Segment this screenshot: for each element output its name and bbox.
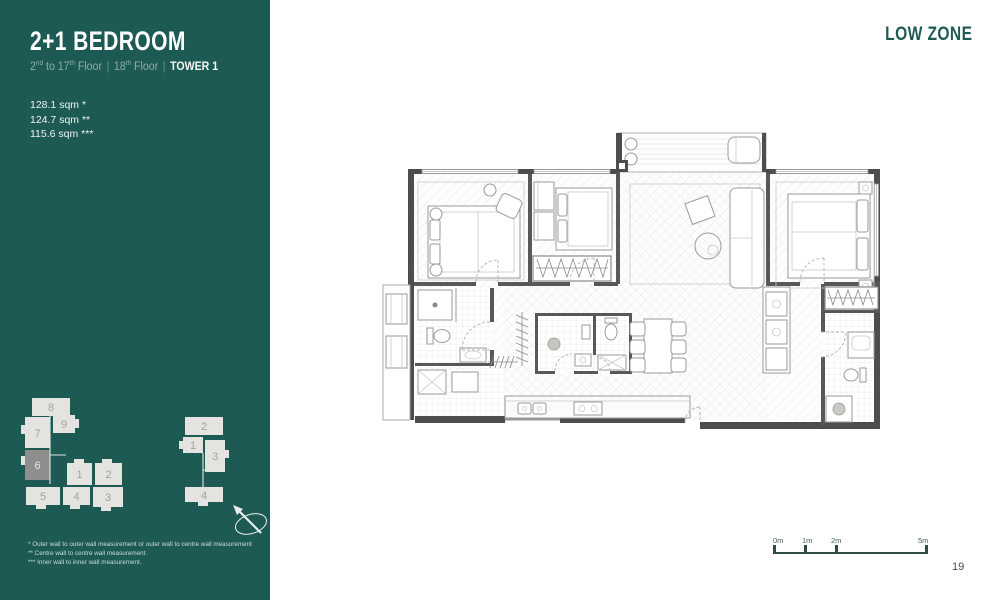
keyplan-tower2: 2 1 3 4: [178, 412, 238, 512]
keyplan-tab: [21, 456, 25, 465]
sink: [575, 354, 591, 366]
keyplan-unit-2-label: 2: [105, 469, 111, 481]
pillow: [558, 220, 567, 242]
balcony: [616, 133, 766, 172]
shelf: [582, 325, 590, 339]
keyplan-corridor-line: [203, 453, 205, 487]
keyplan-unit-1-label: 1: [76, 469, 82, 481]
area-outer: 128.1 sqm *: [30, 98, 93, 113]
info-panel: 2+1 BEDROOM 2nd to 17th Floor|18th Floor…: [0, 0, 270, 600]
scale-tick: [925, 545, 928, 554]
dining-chair: [630, 340, 645, 354]
footnote-1: * Outer wall to outer wall measurement o…: [28, 540, 252, 549]
scale-5m: 5m: [918, 536, 928, 545]
ac-unit: [386, 336, 407, 368]
keyplan-tab: [179, 441, 183, 449]
scale-2m: 2m: [831, 536, 841, 545]
bedroom-3: [533, 182, 612, 281]
cabinet: [766, 348, 787, 370]
keyplan-unit-8-label: 8: [48, 402, 54, 414]
subtitle-separator: |: [163, 61, 166, 73]
scale-tick: [835, 545, 838, 554]
keyplan-unit-4-label: 4: [73, 491, 79, 503]
keyplan-unit-5-label: 5: [40, 491, 46, 503]
nightstand: [430, 208, 442, 220]
keyplan-tab: [102, 459, 112, 463]
area-centre: 124.7 sqm **: [30, 113, 93, 128]
keyplan-tab: [225, 450, 229, 458]
wardrobe: [533, 256, 611, 281]
scale-tick: [773, 545, 776, 554]
keyplan-unit-9-label: 9: [61, 419, 67, 431]
area-measurements: 128.1 sqm * 124.7 sqm ** 115.6 sqm ***: [30, 98, 93, 142]
keyplan-tab: [70, 505, 80, 509]
keyplan-tower1: 8 9 7 6 5 1 2 4 3: [20, 392, 160, 527]
keyplan-tab: [75, 419, 79, 428]
keyplan-tab: [198, 502, 208, 506]
keyplan-unit-7-label: 7: [34, 428, 40, 440]
side-table: [484, 184, 496, 196]
footnote-2: ** Centre wall to centre wall measuremen…: [28, 549, 252, 558]
subtitle-text: 18: [114, 61, 126, 73]
page-number: 19: [952, 561, 964, 573]
toilet-tank: [427, 328, 433, 344]
area-inner: 115.6 sqm ***: [30, 127, 93, 142]
keyplan2-unit-3-label: 3: [212, 451, 218, 463]
zone-label: LOW ZONE: [885, 24, 972, 46]
subtitle-text: to 17: [43, 61, 69, 73]
keyplan-tab: [101, 507, 111, 511]
planter: [625, 138, 637, 150]
toilet: [844, 369, 858, 381]
cooktop: [574, 402, 602, 415]
dining-area: [630, 319, 686, 373]
kitchen-tall-cabinets: [763, 287, 790, 373]
scale-bar: 0m 1m 2m 5m: [773, 536, 933, 560]
keyplan-unit-3-label: 3: [105, 492, 111, 504]
wardrobe-cabinet: [534, 212, 554, 240]
nightstand: [430, 264, 442, 276]
floor-plan: [378, 122, 898, 442]
keyplan2-unit-2-label: 2: [201, 421, 207, 433]
drain: [548, 338, 560, 350]
lounge-chair: [728, 137, 760, 163]
subtitle-text: Floor: [75, 61, 102, 73]
pillow: [430, 244, 440, 264]
dining-table: [644, 319, 672, 373]
keyplan2-unit-1-label: 1: [190, 440, 196, 452]
pillow: [857, 238, 868, 270]
sink-bowl: [533, 403, 546, 414]
dining-chair: [630, 322, 645, 336]
pillow: [857, 200, 868, 232]
kitchen-counter: [505, 396, 690, 418]
tower-label: TOWER 1: [170, 61, 218, 73]
scale-tick: [804, 545, 807, 554]
scale-0m: 0m: [773, 536, 783, 545]
dining-chair: [671, 340, 686, 354]
pillow: [558, 194, 567, 216]
dining-chair: [671, 322, 686, 336]
nightstand: [859, 182, 872, 194]
keyplan-tab: [74, 459, 84, 463]
keyplan-unit-6-label: 6: [34, 460, 40, 472]
oven: [766, 292, 787, 316]
pillow: [430, 220, 440, 240]
master-wardrobe: [825, 287, 878, 309]
toilet: [605, 324, 617, 340]
wardrobe-cabinet: [534, 182, 554, 210]
measurement-footnotes: * Outer wall to outer wall measurement o…: [28, 540, 252, 567]
master-bedroom: [776, 182, 874, 292]
keyplan-tab: [36, 505, 46, 509]
scale-line: [773, 552, 928, 554]
page-title: 2+1 BEDROOM: [30, 26, 186, 57]
subtitle-separator: |: [107, 61, 110, 73]
dining-chair: [671, 358, 686, 372]
scale-1m: 1m: [802, 536, 812, 545]
compass-north-icon: [228, 503, 274, 543]
toilet-tank: [860, 368, 866, 382]
toilet-tank: [605, 318, 617, 323]
footnote-3: *** Inner wall to inner wall measurement…: [28, 558, 252, 567]
ac-ledge: [383, 285, 410, 420]
subtitle-text: Floor: [131, 61, 158, 73]
sink-bowl: [518, 403, 531, 414]
keyplan2-unit-4-label: 4: [201, 490, 207, 502]
cabinet: [452, 372, 478, 392]
oven: [766, 320, 787, 344]
keyplan-tab: [21, 425, 25, 434]
ac-unit: [386, 294, 407, 324]
dining-chair: [630, 358, 645, 372]
toilet: [434, 330, 450, 343]
floor-subtitle: 2nd to 17th Floor|18th Floor|TOWER 1: [30, 60, 218, 73]
